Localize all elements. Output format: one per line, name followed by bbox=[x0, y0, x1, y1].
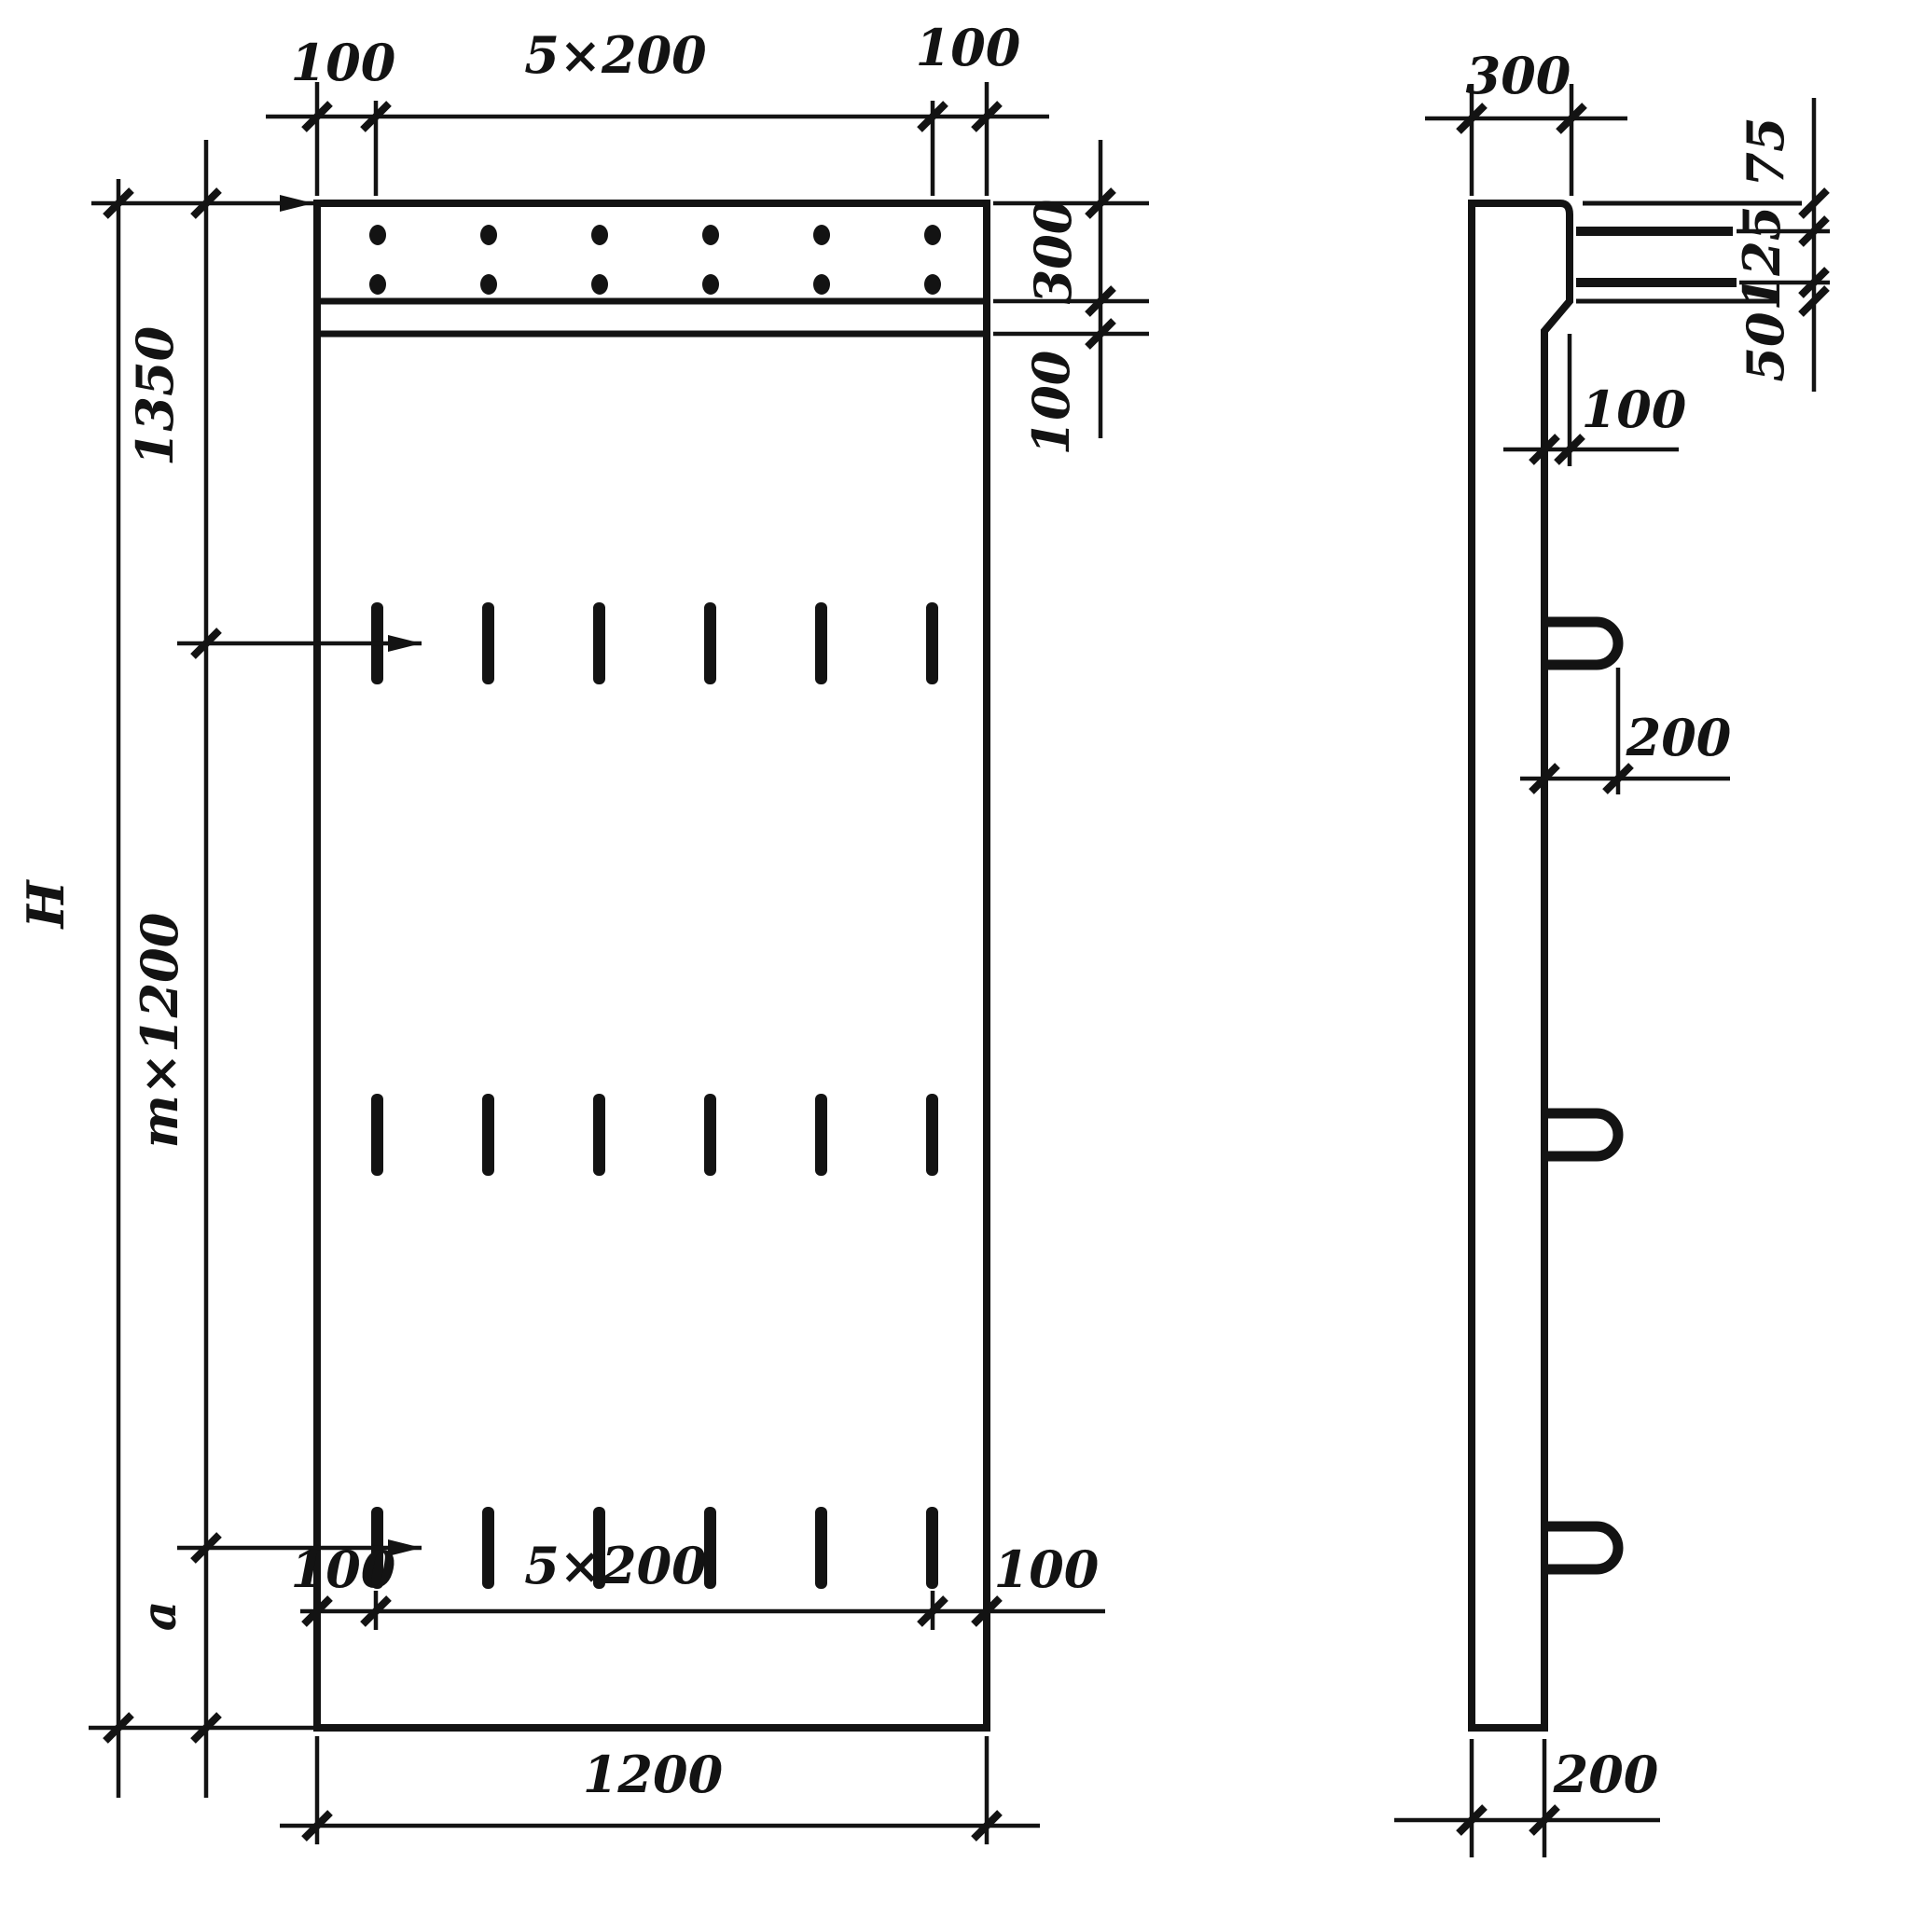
side-dimensions: 300 75 125 50 100 200 200 bbox=[1394, 46, 1830, 1857]
drawing-canvas: 100 5×200 100 300 100 1350 m×1200 a H bbox=[0, 0, 1910, 1932]
column-profile bbox=[1472, 203, 1570, 1728]
dim-bottom-offset-left: 100 bbox=[291, 1539, 396, 1599]
dim-top-spacing: 5×200 bbox=[524, 25, 707, 85]
technical-drawing-page: 100 5×200 100 300 100 1350 m×1200 a H bbox=[0, 0, 1910, 1932]
dim-middle-spacing: m×1200 bbox=[130, 913, 189, 1149]
dim-hook-length: 200 bbox=[1626, 708, 1732, 767]
front-dimensions: 100 5×200 100 300 100 1350 m×1200 a H bbox=[16, 18, 1149, 1844]
dim-top-to-first-row: 1350 bbox=[125, 326, 185, 466]
slot-row-2 bbox=[371, 1094, 938, 1176]
dim-ledge-bottom: 50 bbox=[1736, 311, 1795, 381]
dim-overall-width: 1200 bbox=[583, 1745, 723, 1804]
dim-side-top-width: 300 bbox=[1466, 46, 1571, 105]
anchor-dots bbox=[369, 225, 941, 295]
dim-top-offset-left: 100 bbox=[291, 33, 396, 92]
dim-total-height: H bbox=[16, 879, 76, 931]
dim-ledge-top: 75 bbox=[1736, 117, 1795, 186]
dim-top-offset-right: 100 bbox=[916, 18, 1021, 77]
dim-band-height: 300 bbox=[1023, 200, 1083, 305]
dim-band-gap: 100 bbox=[1021, 351, 1081, 456]
dim-base-thickness: 200 bbox=[1553, 1745, 1659, 1804]
dim-ledge-middle: 125 bbox=[1732, 206, 1792, 311]
front-view bbox=[317, 203, 987, 1728]
slot-row-1 bbox=[371, 602, 938, 684]
panel-outline bbox=[317, 203, 987, 1728]
dim-console-depth: 100 bbox=[1582, 379, 1687, 439]
hook-2 bbox=[1544, 1113, 1618, 1156]
hook-3 bbox=[1544, 1526, 1618, 1569]
dim-bottom-spacing: 5×200 bbox=[524, 1536, 707, 1595]
dim-bottom-offset-right: 100 bbox=[994, 1539, 1100, 1599]
dim-bottom-segment: a bbox=[131, 1601, 187, 1631]
hook-1 bbox=[1544, 622, 1618, 665]
